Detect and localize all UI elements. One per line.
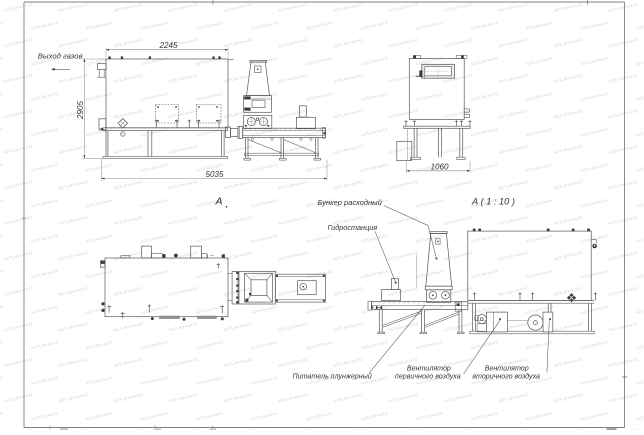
svg-text:Гидростанция: Гидростанция: [328, 223, 378, 232]
svg-text:Вентилятор: Вентилятор: [485, 364, 529, 372]
svg-text:2905: 2905: [76, 100, 85, 120]
svg-text:2245: 2245: [159, 41, 179, 50]
svg-text:А: А: [215, 196, 223, 208]
svg-text:А ( 1 : 10 ): А ( 1 : 10 ): [471, 197, 515, 207]
svg-text:Питатель плунжерный: Питатель плунжерный: [293, 372, 372, 380]
svg-text:вторичного воздуха: вторичного воздуха: [472, 373, 540, 381]
svg-text:Вентилятор: Вентилятор: [407, 364, 451, 372]
svg-text:первичного воздуха: первичного воздуха: [395, 373, 461, 381]
svg-text:1060: 1060: [431, 162, 450, 171]
svg-text:5035: 5035: [206, 170, 225, 179]
svg-text:Выход газов: Выход газов: [38, 52, 83, 61]
svg-text:Бункер расходный: Бункер расходный: [318, 198, 383, 207]
